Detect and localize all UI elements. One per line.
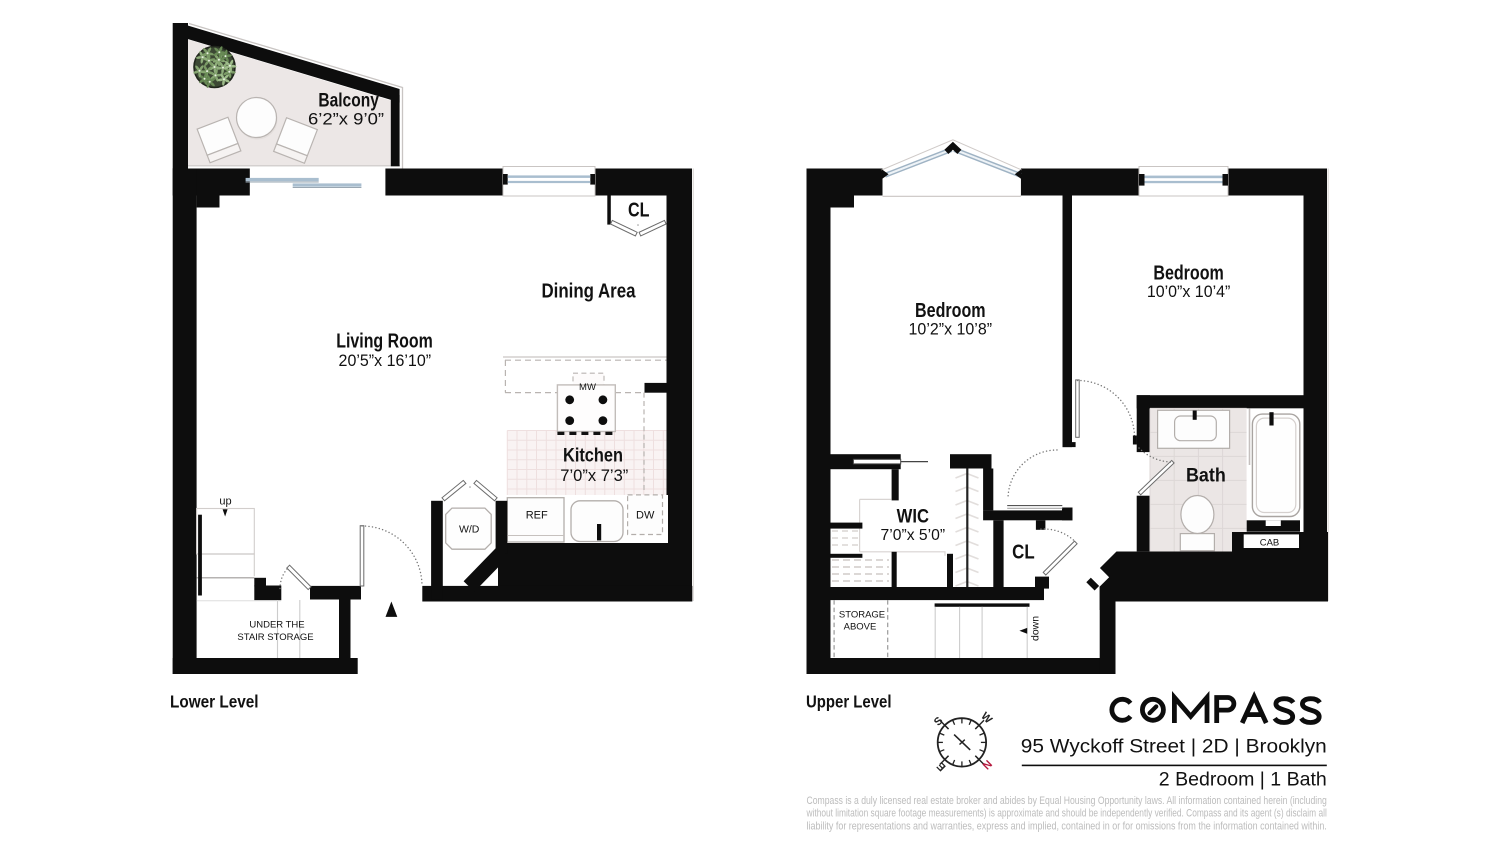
svg-text:Kitchen: Kitchen (563, 445, 623, 467)
svg-text:10’0”x 10’4”: 10’0”x 10’4” (1147, 282, 1231, 301)
svg-text:7’0”x 5’0”: 7’0”x 5’0” (881, 527, 946, 544)
svg-text:WIC: WIC (897, 507, 930, 528)
svg-text:UNDER THE: UNDER THE (249, 620, 304, 631)
svg-text:CAB: CAB (1260, 538, 1280, 549)
svg-text:Upper Level: Upper Level (806, 692, 892, 712)
svg-text:ABOVE: ABOVE (844, 622, 877, 633)
svg-text:DW: DW (636, 510, 655, 522)
svg-text:Compass is a duly licensed rea: Compass is a duly licensed real estate b… (807, 795, 1327, 807)
svg-text:CL: CL (628, 200, 650, 222)
svg-text:7’0”x 7’3”: 7’0”x 7’3” (560, 467, 628, 485)
svg-text:up: up (219, 496, 231, 508)
svg-text:Living Room: Living Room (336, 330, 433, 353)
svg-text:without limitation square foot: without limitation square footage measur… (806, 808, 1327, 820)
svg-text:95 Wyckoff Street | 2D | Brook: 95 Wyckoff Street | 2D | Brooklyn (1021, 736, 1327, 758)
svg-text:Dining Area: Dining Area (542, 281, 637, 303)
svg-text:2 Bedroom | 1 Bath: 2 Bedroom | 1 Bath (1159, 770, 1327, 791)
svg-text:STORAGE: STORAGE (839, 610, 885, 621)
svg-text:Bath: Bath (1186, 466, 1226, 487)
svg-text:down: down (1030, 616, 1042, 641)
svg-text:Balcony: Balcony (318, 90, 379, 112)
svg-text:REF: REF (526, 510, 548, 522)
svg-text:liability for representations: liability for representations and warran… (807, 821, 1327, 833)
svg-text:W/D: W/D (459, 524, 480, 536)
svg-text:Lower Level: Lower Level (170, 692, 259, 712)
svg-text:CL: CL (1012, 542, 1035, 564)
svg-text:10’2”x 10’8”: 10’2”x 10’8” (909, 320, 993, 339)
svg-text:STAIR STORAGE: STAIR STORAGE (237, 632, 313, 643)
svg-text:6’2”x 9’0”: 6’2”x 9’0” (308, 110, 384, 129)
svg-text:MW: MW (579, 382, 596, 393)
svg-text:20’5”x 16’10”: 20’5”x 16’10” (339, 351, 432, 370)
